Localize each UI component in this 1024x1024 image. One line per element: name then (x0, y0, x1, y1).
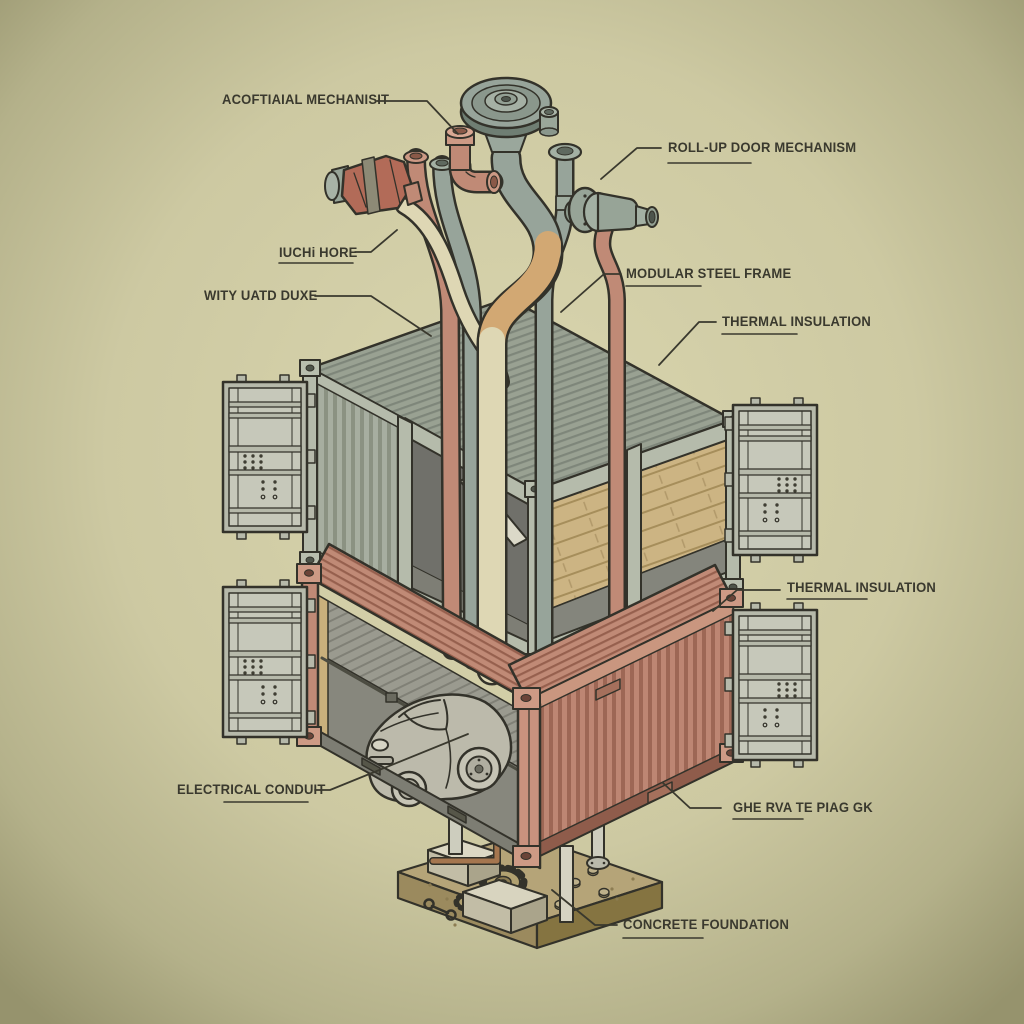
label-steel-frame: MODULAR STEEL FRAME (626, 266, 791, 281)
label-thermal-lower: THERMAL INSULATION (787, 580, 936, 595)
diagram-illustration (0, 0, 1024, 1024)
label-duct: WITY UATD DUXE (204, 288, 318, 303)
diagram-canvas: ACOFTIAIAL MECHANISIT ROLL-UP DOOR MECHA… (0, 0, 1024, 1024)
junction-box (386, 693, 397, 702)
label-roll-up-door: ROLL-UP DOOR MECHANISM (668, 140, 856, 155)
label-foundation: CONCRETE FOUNDATION (623, 917, 789, 932)
label-hose: IUCHi HORE (279, 245, 358, 260)
label-actuator: ACOFTIAIAL MECHANISIT (222, 92, 389, 107)
label-electrical: ELECTRICAL CONDUIT (177, 782, 325, 797)
label-thermal-upper: THERMAL INSULATION (722, 314, 871, 329)
label-cladding: GHE RVA TE PIAG GK (733, 800, 873, 815)
small-cylinder-fitting (540, 107, 558, 136)
